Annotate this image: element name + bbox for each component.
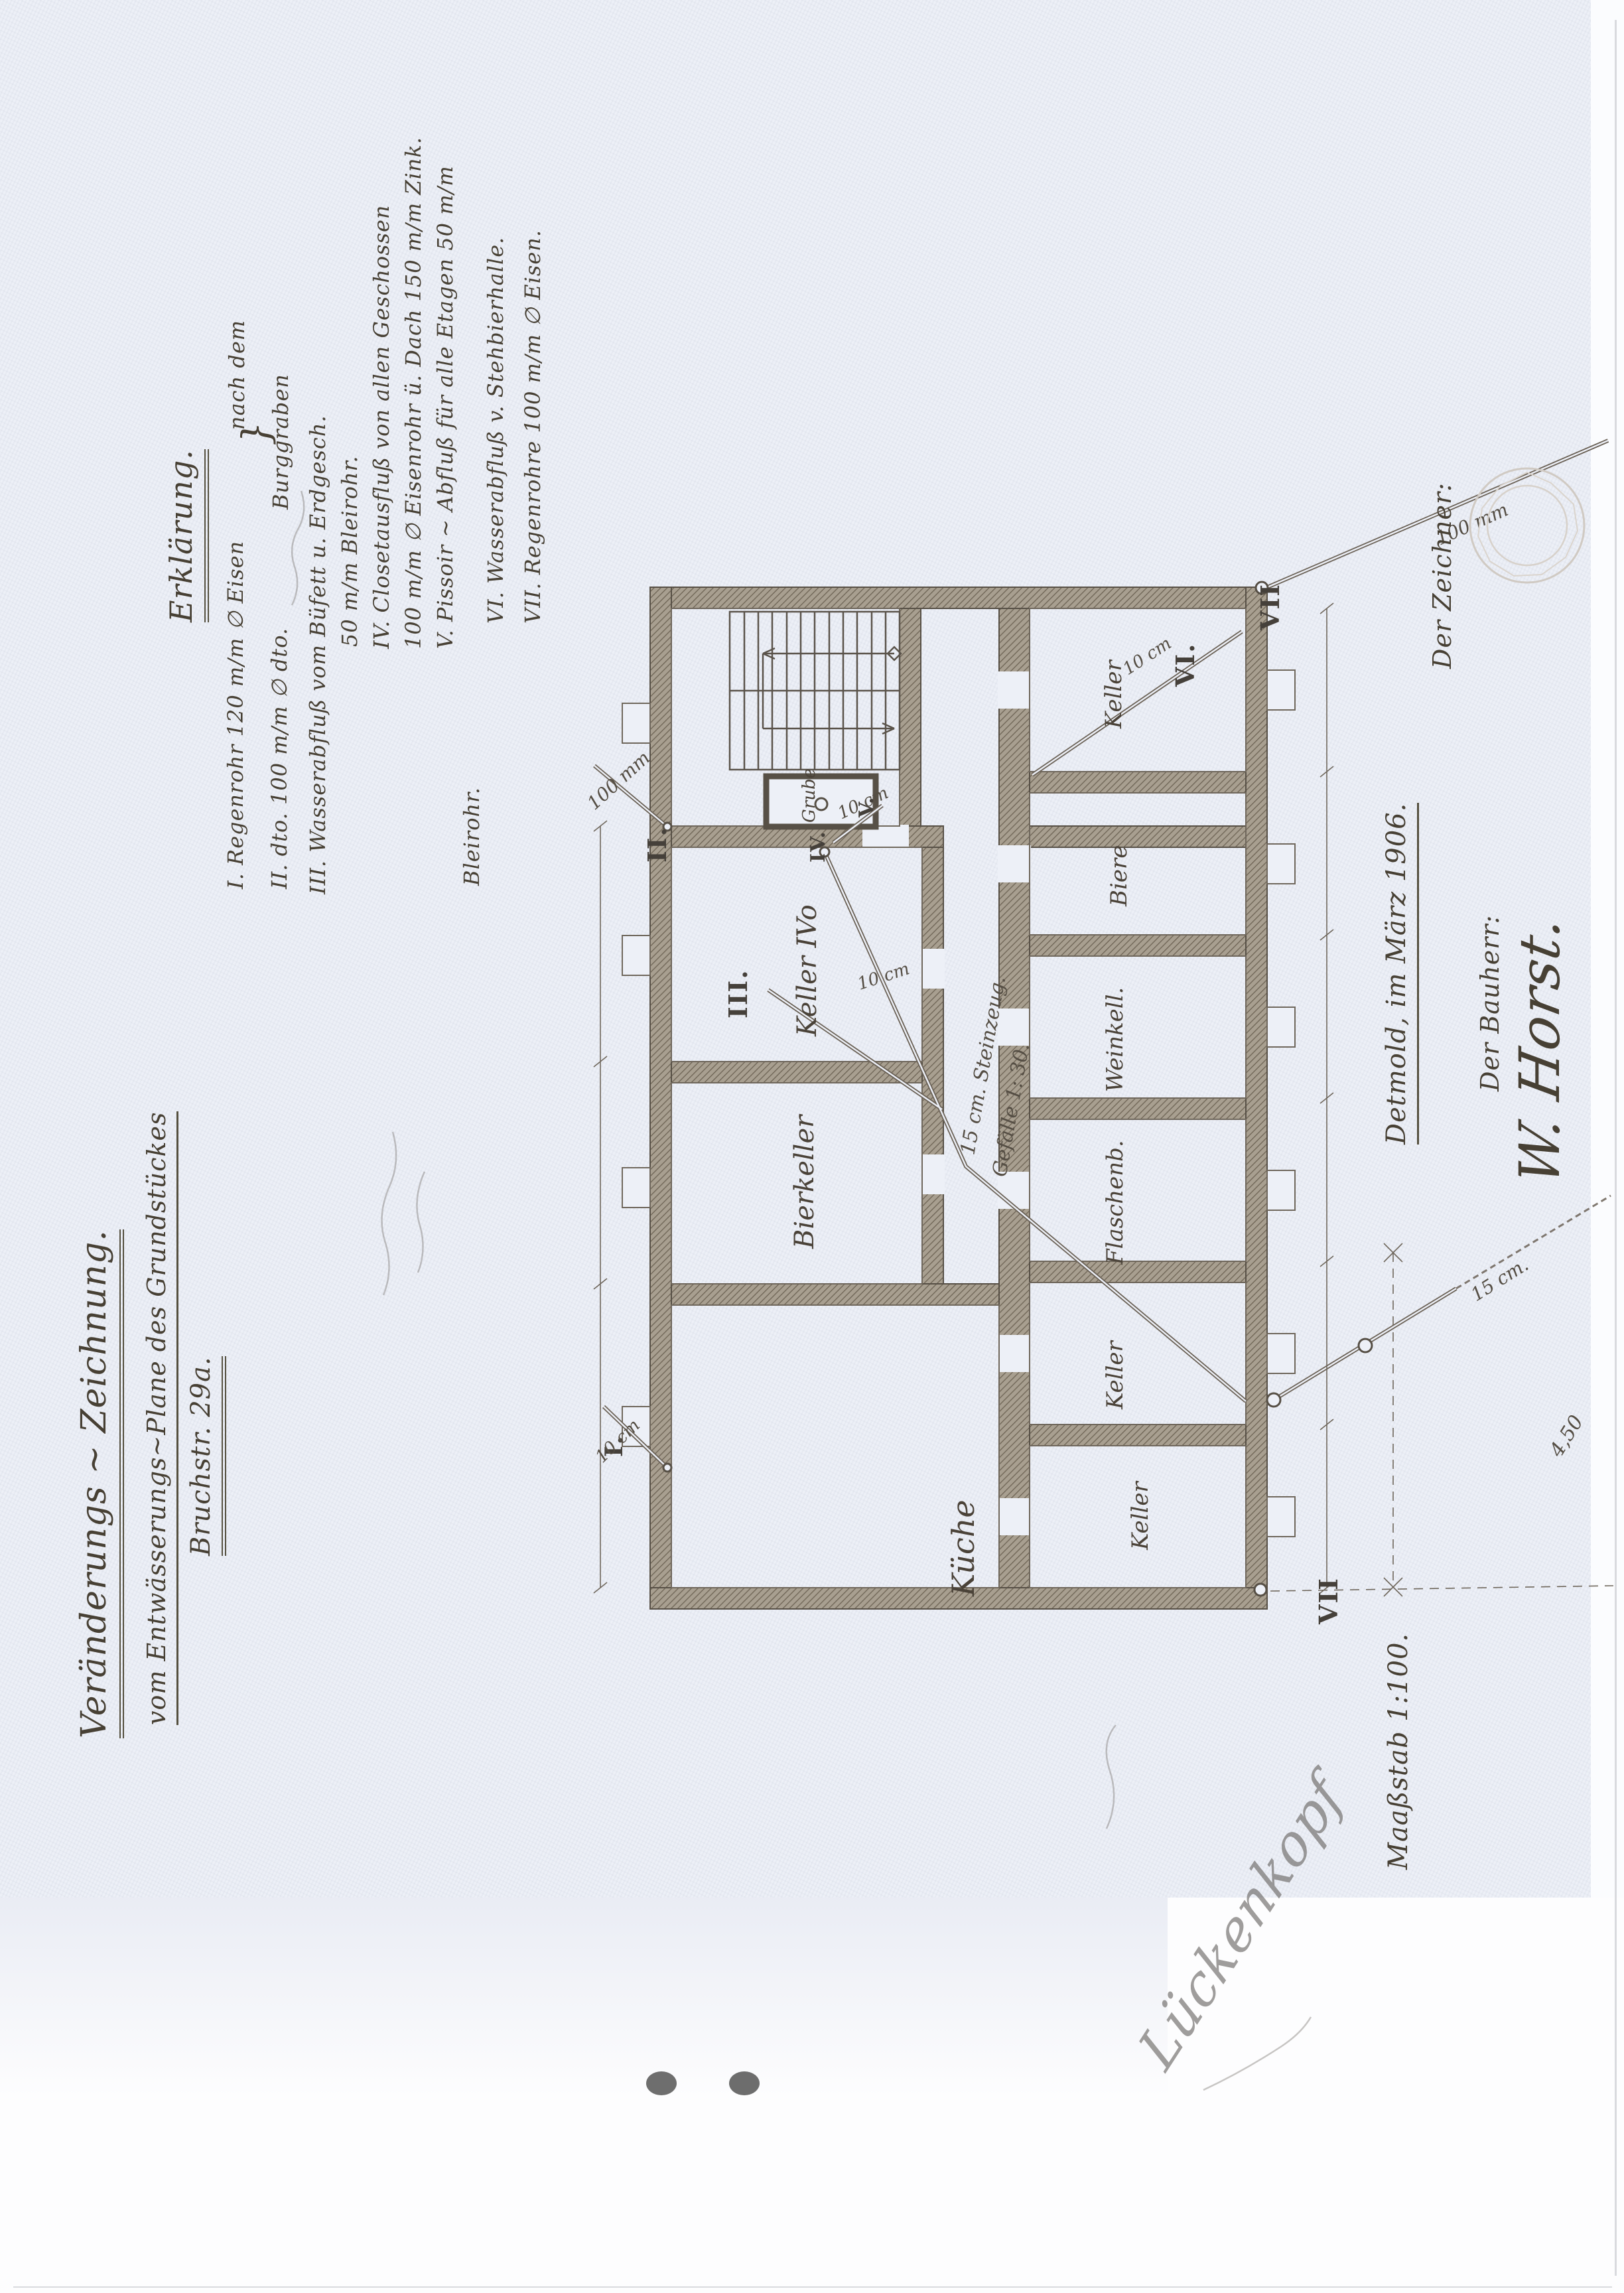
room-label-grube: Grube <box>799 768 819 823</box>
embossed-seal <box>1470 468 1584 583</box>
room-label-flaschenbier: Flaschenb. <box>1102 1140 1128 1265</box>
pipe-label-10cm-keller: 10 cm <box>855 959 912 994</box>
dimension-label-450: 4,50 <box>1545 1411 1589 1462</box>
marker-vi: VI. <box>1170 643 1200 688</box>
marker-vii-top: VII <box>1255 583 1285 631</box>
marker-iv: IV. <box>807 830 830 863</box>
punch-holes <box>646 2071 760 2095</box>
room-label-keller-ivo: Keller IVo <box>792 904 823 1037</box>
pipe-label-100mm-left: 100 mm <box>583 746 655 814</box>
floor-plan-drawing: Grube Keller IVo Bierkeller Küche Keller… <box>0 0 1624 2293</box>
room-label-kueche: Küche <box>945 1499 981 1597</box>
staircase <box>730 612 901 770</box>
date-line: Detmold, im März 1906. <box>1381 803 1419 1145</box>
scanned-drawing-page: Veränderungs ~ Zeichnung. vom Entwässeru… <box>0 0 1624 2293</box>
room-label-keller-6: Keller <box>1127 1481 1154 1551</box>
zeichner-label: Der Zeichner: <box>1428 482 1457 669</box>
scale-label: Maaßstab 1:100. <box>1383 1633 1414 1870</box>
room-label-weinkeller: Weinkell. <box>1102 987 1128 1092</box>
room-label-biere: Biere <box>1106 845 1132 907</box>
room-label-keller-1: Keller <box>1101 660 1127 729</box>
pipe-label-10cm-vi: 10 cm <box>1119 634 1175 679</box>
room-label-keller-5: Keller <box>1102 1340 1128 1410</box>
room-label-bierkeller: Bierkeller <box>789 1113 820 1249</box>
marker-iii: III. <box>723 969 753 1018</box>
bauherr-label: Der Bauherr: <box>1475 915 1505 1091</box>
marker-ii: II. <box>642 826 672 863</box>
marker-vii-bottom: VII <box>1314 1577 1343 1625</box>
bauherr-signature: W. Horst. <box>1507 911 1572 1189</box>
